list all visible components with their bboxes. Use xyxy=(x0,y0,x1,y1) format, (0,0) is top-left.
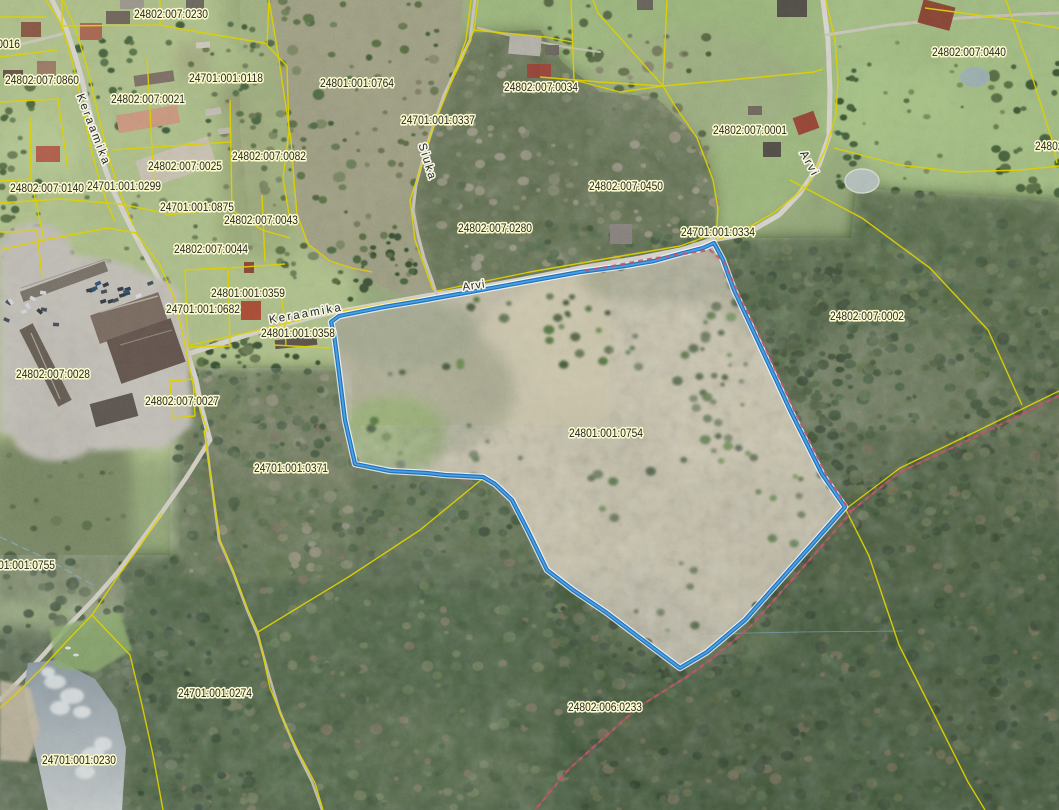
svg-text:24802:006:0233: 24802:006:0233 xyxy=(568,702,642,714)
svg-text:24802:007:0002: 24802:007:0002 xyxy=(830,311,904,323)
svg-text:24802:007:0440: 24802:007:0440 xyxy=(932,47,1006,59)
svg-text:24802:007:0027: 24802:007:0027 xyxy=(145,396,219,408)
svg-text:24802:007:0860: 24802:007:0860 xyxy=(5,75,79,87)
svg-text:24701:001:0682: 24701:001:0682 xyxy=(166,304,240,316)
svg-text:24701:001:0334: 24701:001:0334 xyxy=(681,227,756,239)
svg-text:24802:007:0082: 24802:007:0082 xyxy=(232,151,306,163)
svg-text:24802:007:0450: 24802:007:0450 xyxy=(589,181,663,193)
svg-text:24802:007:0280: 24802:007:0280 xyxy=(458,223,532,235)
svg-text:24802:007:0021: 24802:007:0021 xyxy=(111,94,185,106)
svg-text:24802:007:0001: 24802:007:0001 xyxy=(713,125,787,137)
svg-text:24801:001:0754: 24801:001:0754 xyxy=(569,428,644,440)
svg-text:24802:007:0043: 24802:007:0043 xyxy=(224,215,298,227)
svg-text:24701:001:0274: 24701:001:0274 xyxy=(178,688,253,700)
svg-text:24701:001:0371: 24701:001:0371 xyxy=(254,463,328,475)
svg-text:24802:007:0025: 24802:007:0025 xyxy=(148,161,222,173)
svg-text:24701:001:0337: 24701:001:0337 xyxy=(401,115,475,127)
svg-text:24801:001:0358: 24801:001:0358 xyxy=(261,328,335,340)
svg-text:24801:001:0764: 24801:001:0764 xyxy=(320,78,395,90)
svg-text:24802:007:0028: 24802:007:0028 xyxy=(16,369,90,381)
svg-text:24802:007:0016: 24802:007:0016 xyxy=(0,39,20,51)
svg-text:24701:001:0118: 24701:001:0118 xyxy=(189,73,263,85)
svg-text:24801:001:0359: 24801:001:0359 xyxy=(211,288,285,300)
svg-text:24802:007:0034: 24802:007:0034 xyxy=(504,82,579,94)
svg-text:24701:001:0755: 24701:001:0755 xyxy=(0,560,55,572)
svg-text:24701:001:0299: 24701:001:0299 xyxy=(87,181,161,193)
svg-text:24701:001:0875: 24701:001:0875 xyxy=(160,202,234,214)
svg-text:24802:007:0140: 24802:007:0140 xyxy=(10,183,84,195)
svg-text:24701:001:0230: 24701:001:0230 xyxy=(42,755,116,767)
svg-text:24802:007:0230: 24802:007:0230 xyxy=(134,9,208,21)
svg-text:24802:007:0044: 24802:007:0044 xyxy=(174,244,249,256)
svg-text:24802:007:0464: 24802:007:0464 xyxy=(1035,141,1059,153)
